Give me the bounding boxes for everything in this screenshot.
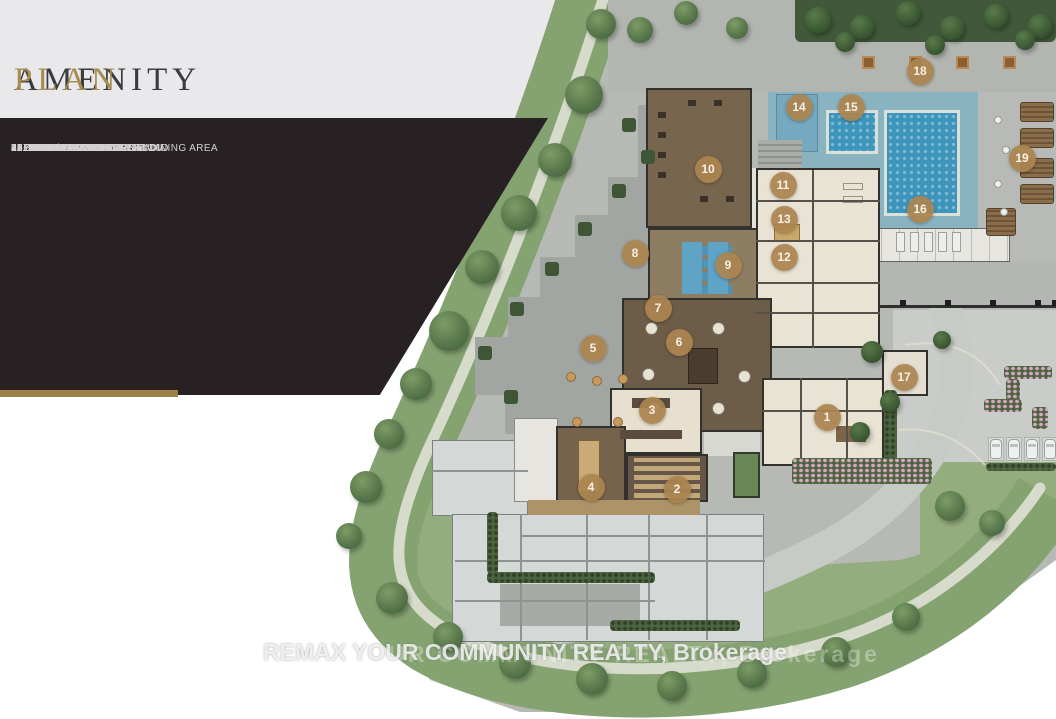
- plan-marker-14: 14: [786, 94, 813, 121]
- outdoor-dining-table: [618, 374, 628, 384]
- shrub: [805, 7, 831, 33]
- parked-car: [1044, 439, 1056, 459]
- shrub: [925, 35, 945, 55]
- pool-lounger: [952, 232, 961, 252]
- plan-marker-4: 4: [578, 474, 605, 501]
- shrub: [880, 392, 900, 412]
- party-table-round: [642, 368, 655, 381]
- page-title: AMENITY PLAN: [14, 62, 434, 108]
- party-table-round: [712, 322, 725, 335]
- plan-marker-11: 11: [770, 172, 797, 199]
- interior-wall: [455, 600, 655, 602]
- parked-car: [1026, 439, 1038, 459]
- plan-marker-9: 9: [715, 252, 742, 279]
- shrub: [984, 4, 1008, 28]
- hedge: [487, 512, 498, 574]
- shrub: [896, 1, 920, 25]
- flower-hedge: [792, 458, 932, 484]
- pool-lounger: [938, 232, 947, 252]
- pool-lounger: [924, 232, 933, 252]
- tree: [501, 195, 537, 231]
- fitness-equipment: [658, 112, 666, 118]
- interior-wall: [800, 378, 802, 466]
- tree: [336, 523, 362, 549]
- sun-deck-lounger: [1020, 102, 1054, 122]
- terrace-planter: [510, 302, 524, 316]
- interior-wall: [756, 312, 880, 314]
- shrub: [861, 341, 883, 363]
- plan-marker-10: 10: [695, 156, 722, 183]
- plan-marker-18: 18: [907, 58, 934, 85]
- entry-canopy: [862, 262, 1056, 308]
- interior-wall: [756, 200, 880, 202]
- fitness-equipment: [700, 196, 708, 202]
- canopy-column: [1052, 300, 1056, 306]
- tree: [565, 76, 603, 114]
- outdoor-dining-table: [566, 372, 576, 382]
- shrub: [850, 15, 874, 39]
- side-table: [1000, 208, 1008, 216]
- shrub: [835, 32, 855, 52]
- tree: [892, 603, 920, 631]
- parked-car: [990, 439, 1002, 459]
- flower-hedge: [1006, 379, 1020, 401]
- shrub: [933, 331, 951, 349]
- tree: [465, 250, 499, 284]
- shrub: [850, 422, 870, 442]
- plan-marker-2: 2: [664, 476, 691, 503]
- hedge: [986, 463, 1056, 471]
- interior-wall: [756, 282, 880, 284]
- kitchen-counter: [620, 430, 682, 439]
- plan-marker-19: 19: [1009, 145, 1036, 172]
- plan-marker-15: 15: [838, 94, 865, 121]
- tree: [935, 491, 965, 521]
- interior-wall: [812, 170, 814, 348]
- alfresco-dining-set: [956, 56, 969, 69]
- interior-wall: [756, 240, 880, 242]
- shrub: [940, 16, 964, 40]
- plan-marker-8: 8: [622, 240, 649, 267]
- fitness-equipment: [688, 100, 696, 106]
- tree: [429, 311, 469, 351]
- terrace-planter: [622, 118, 636, 132]
- plan-marker-12: 12: [771, 244, 798, 271]
- watermark: REMAX YOUR COMMUNITY REALTY, Brokerage: [255, 639, 795, 671]
- party-table-round: [645, 322, 658, 335]
- tree: [726, 17, 748, 39]
- fitness-equipment: [658, 152, 666, 158]
- tree: [538, 143, 572, 177]
- terrace-planter: [478, 346, 492, 360]
- interior-wall: [432, 470, 528, 472]
- fitness-centre-room: [646, 88, 752, 228]
- side-table: [994, 180, 1002, 188]
- service-rooms: [514, 418, 558, 502]
- tree: [350, 471, 382, 503]
- party-table-round: [738, 370, 751, 383]
- flower-hedge: [1032, 407, 1048, 429]
- hedge: [610, 620, 740, 631]
- flower-hedge: [984, 399, 1022, 412]
- outdoor-dining-table: [592, 376, 602, 386]
- tree: [586, 9, 616, 39]
- utility-room: [733, 452, 760, 498]
- parked-car: [1008, 439, 1020, 459]
- tree: [657, 671, 687, 701]
- canopy-column: [1035, 300, 1041, 306]
- tree: [979, 510, 1005, 536]
- interior-wall: [520, 535, 764, 537]
- plan-marker-17: 17: [891, 364, 918, 391]
- side-table: [1002, 146, 1010, 154]
- terrace-planter: [504, 390, 518, 404]
- flower-hedge: [1004, 366, 1052, 379]
- legend-item-19: 19. OUTDOOR SUN DECK: [11, 143, 141, 155]
- fitness-equipment: [658, 172, 666, 178]
- alfresco-dining-set: [1003, 56, 1016, 69]
- terrace-planter: [612, 184, 626, 198]
- plan-marker-3: 3: [639, 397, 666, 424]
- pool-lounger: [910, 232, 919, 252]
- plan-marker-6: 6: [666, 329, 693, 356]
- party-table-round: [712, 402, 725, 415]
- canopy-column: [990, 300, 996, 306]
- entry-stairs: [758, 140, 802, 170]
- hedge: [487, 572, 655, 583]
- tree: [374, 419, 404, 449]
- terrace-planter: [545, 262, 559, 276]
- gold-accent-bar: [0, 390, 178, 397]
- alfresco-dining-set: [862, 56, 875, 69]
- side-table: [994, 116, 1002, 124]
- tree: [674, 1, 698, 25]
- terrace-planter: [578, 222, 592, 236]
- interior-wall: [846, 378, 848, 466]
- deck-bench: [843, 183, 863, 190]
- title-secondary: PLAN: [14, 62, 120, 99]
- plan-marker-13: 13: [771, 206, 798, 233]
- shrub: [1015, 30, 1035, 50]
- terrace-planter: [641, 150, 655, 164]
- pool-lounger: [896, 232, 905, 252]
- plan-marker-7: 7: [645, 295, 672, 322]
- interior-wall: [455, 560, 765, 562]
- plan-marker-5: 5: [580, 335, 607, 362]
- fitness-equipment: [658, 132, 666, 138]
- canopy-column: [945, 300, 951, 306]
- tree: [627, 17, 653, 43]
- party-room-table: [688, 348, 718, 384]
- fitness-equipment: [714, 100, 722, 106]
- tree: [400, 368, 432, 400]
- plan-marker-1: 1: [814, 404, 841, 431]
- fitness-equipment: [726, 196, 734, 202]
- amenity-plan-image: REMAX YOUR COMMUNITY REALTY, Brokerage R…: [0, 0, 1056, 719]
- tree: [376, 582, 408, 614]
- plan-marker-16: 16: [907, 196, 934, 223]
- canopy-column: [900, 300, 906, 306]
- outdoor-dining-table: [613, 417, 623, 427]
- outdoor-dining-table: [572, 417, 582, 427]
- sun-deck-lounger: [1020, 184, 1054, 204]
